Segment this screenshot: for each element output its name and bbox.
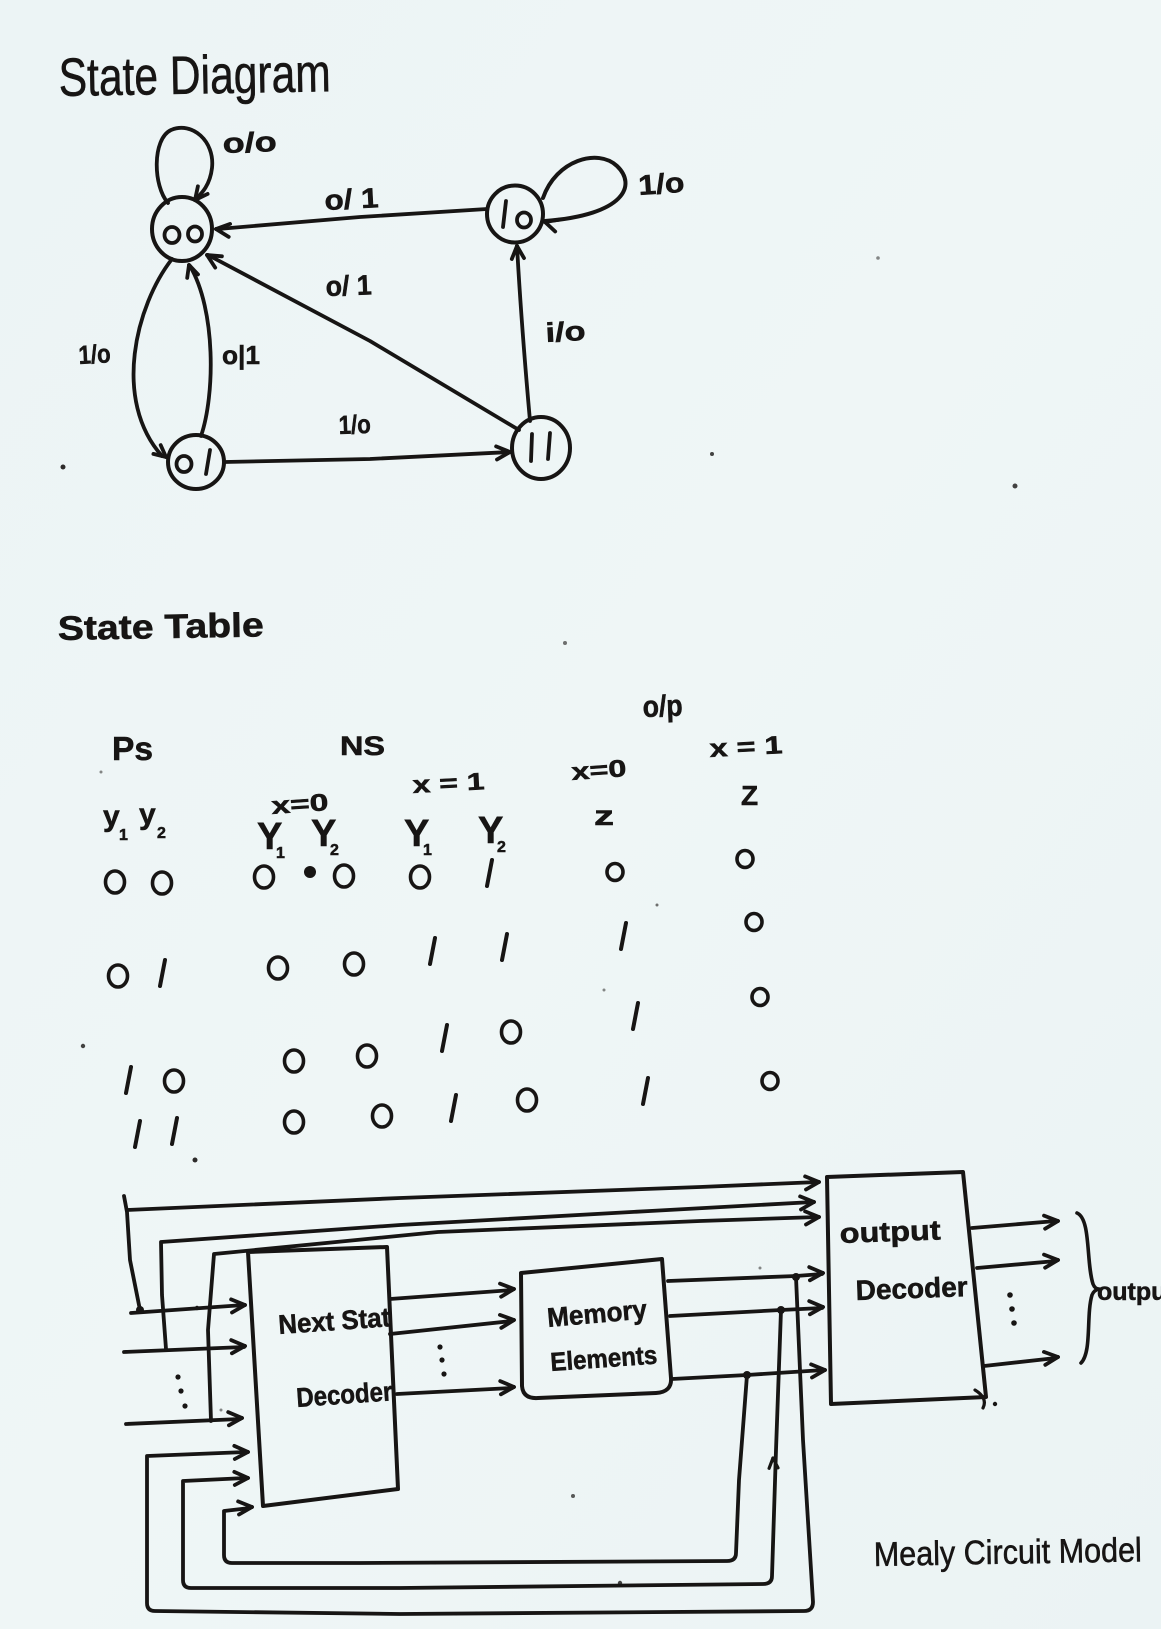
svg-text:Z: Z [741,780,758,811]
svg-text:1/o: 1/o [338,409,371,440]
svg-text:o/ 1: o/ 1 [324,182,380,216]
svg-text:2: 2 [157,825,166,842]
svg-text:1: 1 [276,845,285,862]
svg-text:o|1: o|1 [222,340,260,370]
svg-text:x=0: x=0 [571,755,628,786]
svg-text:Ps: Ps [112,730,153,767]
svg-text:i/o: i/o [545,316,587,348]
svg-text:1/o: 1/o [78,338,112,370]
svg-text:o/ 1: o/ 1 [325,269,372,302]
svg-text:Decoder: Decoder [855,1271,968,1306]
svg-text:x = 1: x = 1 [709,731,783,763]
svg-text:output: output [839,1214,941,1249]
svg-text:outputs: outputs [1097,1278,1161,1306]
svg-text:Mealy Circuit Model: Mealy Circuit Model [873,1531,1142,1574]
svg-text:State Diagram: State Diagram [58,43,331,108]
svg-text:z: z [594,800,614,831]
svg-text:y: y [139,798,156,831]
svg-text:2: 2 [330,842,339,859]
svg-text:1/o: 1/o [637,167,685,201]
svg-text:NS: NS [340,731,385,761]
svg-text:1: 1 [119,827,128,844]
svg-text:o/p: o/p [642,690,683,724]
svg-text:State Table: State Table [57,606,264,648]
svg-text:x = 1: x = 1 [412,768,485,799]
svg-text:2: 2 [497,839,506,856]
svg-text:y: y [103,800,120,833]
svg-text:o/o: o/o [222,126,277,159]
svg-text:1: 1 [423,842,432,859]
